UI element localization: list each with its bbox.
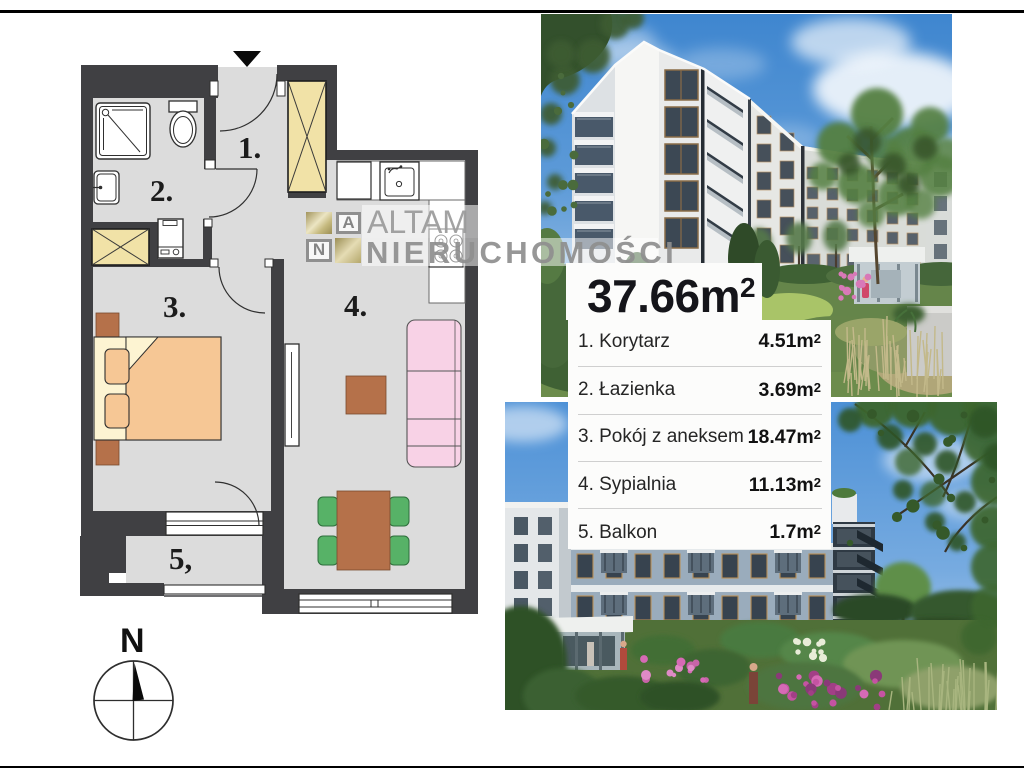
svg-text:4.: 4. (344, 288, 367, 323)
svg-text:N: N (120, 622, 145, 660)
svg-text:5,: 5, (169, 541, 192, 576)
svg-text:2.: 2. (150, 173, 173, 208)
svg-text:3.: 3. (163, 289, 186, 324)
svg-text:1.: 1. (238, 130, 261, 165)
